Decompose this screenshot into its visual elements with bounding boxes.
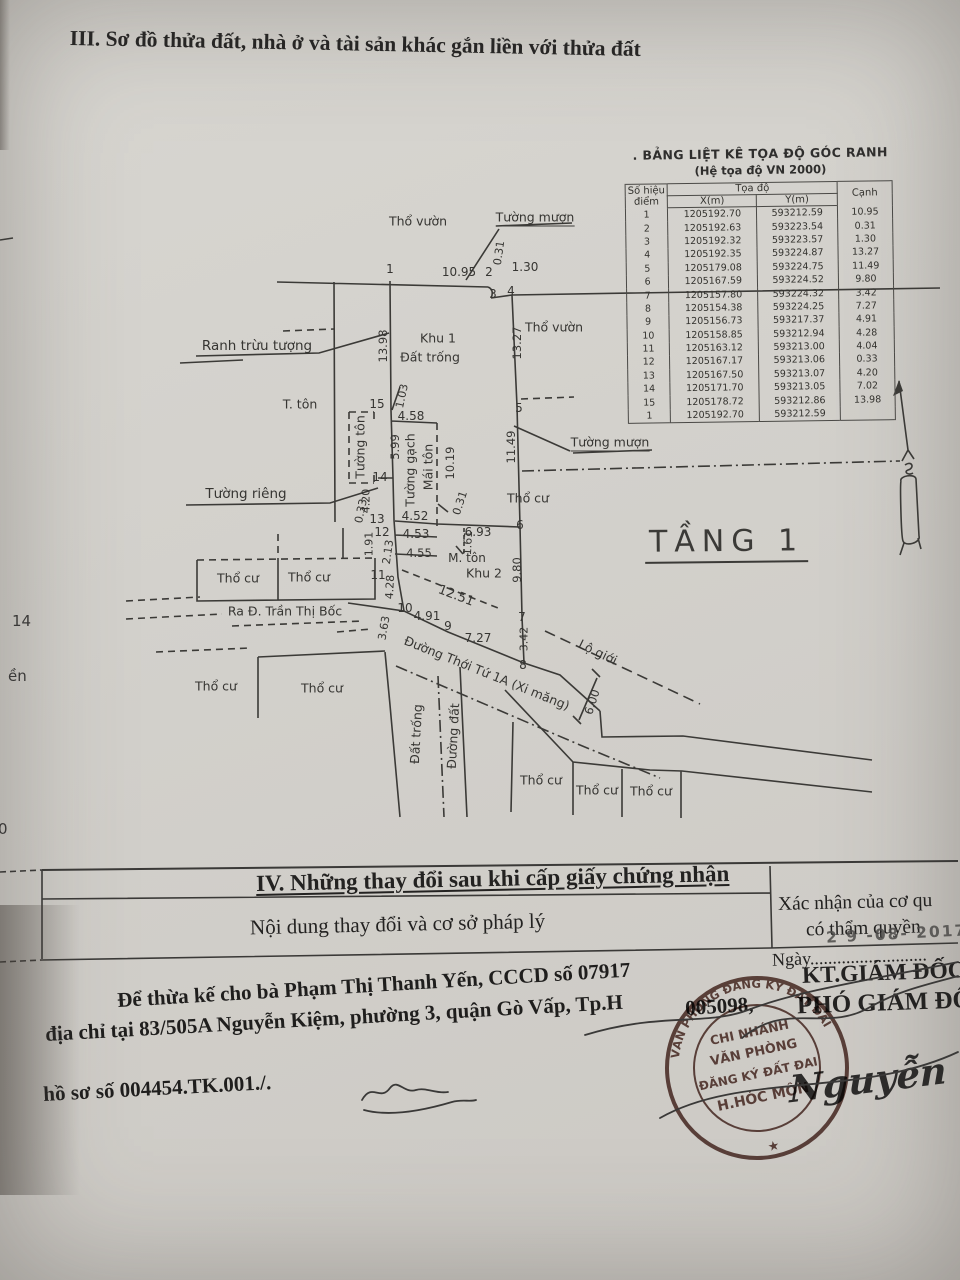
- point-label: 9: [444, 619, 452, 633]
- area-label: Thổ cư: [195, 679, 237, 694]
- area-label: Đất trống: [407, 704, 425, 764]
- measurement-label: 13.98: [376, 330, 390, 363]
- signer-title-2: PHÓ GIÁM ĐỐC: [797, 986, 960, 1021]
- measurement-label: 11.49: [504, 431, 518, 464]
- area-label: Khu 2: [466, 566, 502, 581]
- area-label: Tường gạch: [403, 433, 418, 506]
- coordinate-table-grid: Số hiệu điểm Tọa độ Cạnh X(m) Y(m) 11205…: [625, 180, 896, 424]
- point-label: 6: [516, 518, 524, 532]
- area-label: Ra Đ. Trần Thị Bốc: [228, 604, 342, 619]
- area-label: Tường riêng: [205, 486, 286, 502]
- area-label: Tường tôn: [353, 415, 368, 479]
- coordinate-table-subtitle: (Hệ tọa độ VN 2000): [622, 161, 898, 179]
- floor-label: TẦNG 1: [645, 523, 809, 564]
- col-edge-header: Cạnh: [837, 181, 892, 206]
- measurement-label: 3.42: [518, 627, 531, 652]
- col-y-header: Y(m): [757, 193, 838, 206]
- edge-text-fragment: ền: [8, 667, 27, 685]
- section4-right-header-1: Xác nhận của cơ qu: [778, 890, 933, 916]
- area-label: Thổ cư: [630, 784, 672, 799]
- coordinate-table-title: . BẢNG LIỆT KÊ TỌA ĐỘ GÓC RANH: [622, 144, 898, 163]
- point-label: 14: [372, 470, 387, 484]
- measurement-label: 4.53: [403, 527, 430, 541]
- measurement-label: 4.52: [402, 509, 429, 523]
- measurement-label: 10.95: [442, 265, 476, 279]
- edge-text-fragment: 14: [12, 612, 31, 630]
- col-point-header: Số hiệu điểm: [625, 184, 668, 209]
- measurement-label: 13.27: [510, 327, 524, 360]
- coordinate-table: . BẢNG LIỆT KÊ TỌA ĐỘ GÓC RANH (Hệ tọa đ…: [622, 144, 902, 424]
- area-label: Tường mượn: [496, 210, 575, 227]
- measurement-label: 4.58: [398, 409, 425, 423]
- measurement-label: 4.28: [383, 574, 397, 599]
- area-label: Thổ cư: [520, 773, 562, 788]
- point-label: 8: [519, 658, 527, 672]
- measurement-label: 5.99: [388, 434, 402, 460]
- measurement-label: 10.19: [443, 447, 457, 480]
- area-label: Thổ cư: [301, 681, 343, 696]
- measurement-label: 7.27: [465, 631, 492, 645]
- point-label: 15: [369, 397, 384, 411]
- measurement-label: 9.80: [510, 557, 524, 583]
- edge-text-fragment: 0: [0, 820, 8, 838]
- measurement-label: 1.61: [461, 530, 475, 555]
- area-label: Đất trống: [400, 350, 460, 365]
- area-label: Thổ cư: [288, 570, 330, 585]
- point-label: 2: [485, 265, 493, 279]
- point-label: 10: [397, 601, 412, 615]
- measurement-label: 1.91: [363, 532, 376, 557]
- measurement-label: 4.55: [406, 546, 432, 560]
- point-label: 3: [489, 287, 497, 301]
- change-note-line1b: 005098,: [685, 992, 755, 1021]
- area-label: Mái tôn: [421, 444, 436, 490]
- area-label: Thổ cư: [507, 491, 549, 506]
- area-label: T. tôn: [283, 397, 318, 412]
- point-label: 13: [369, 512, 384, 526]
- point-label: 12: [374, 525, 389, 539]
- area-label: Tường mượn: [571, 435, 650, 452]
- point-label: 4: [507, 284, 515, 298]
- point-label: 1: [386, 262, 394, 276]
- measurement-label: 4.91: [414, 609, 441, 623]
- area-label: Thổ cư: [576, 783, 618, 798]
- signer-title-1: KT.GIÁM ĐỐC: [802, 957, 960, 990]
- point-label: 5: [515, 401, 523, 415]
- area-label: Thổ vườn: [389, 214, 447, 229]
- area-label: Ranh trừu tượng: [202, 338, 312, 354]
- area-label: Khu 1: [420, 331, 456, 346]
- area-label: Thổ cư: [217, 571, 259, 586]
- point-label: 7: [518, 610, 526, 624]
- area-label: Thổ vườn: [525, 320, 583, 335]
- measurement-label: 1.30: [512, 260, 539, 274]
